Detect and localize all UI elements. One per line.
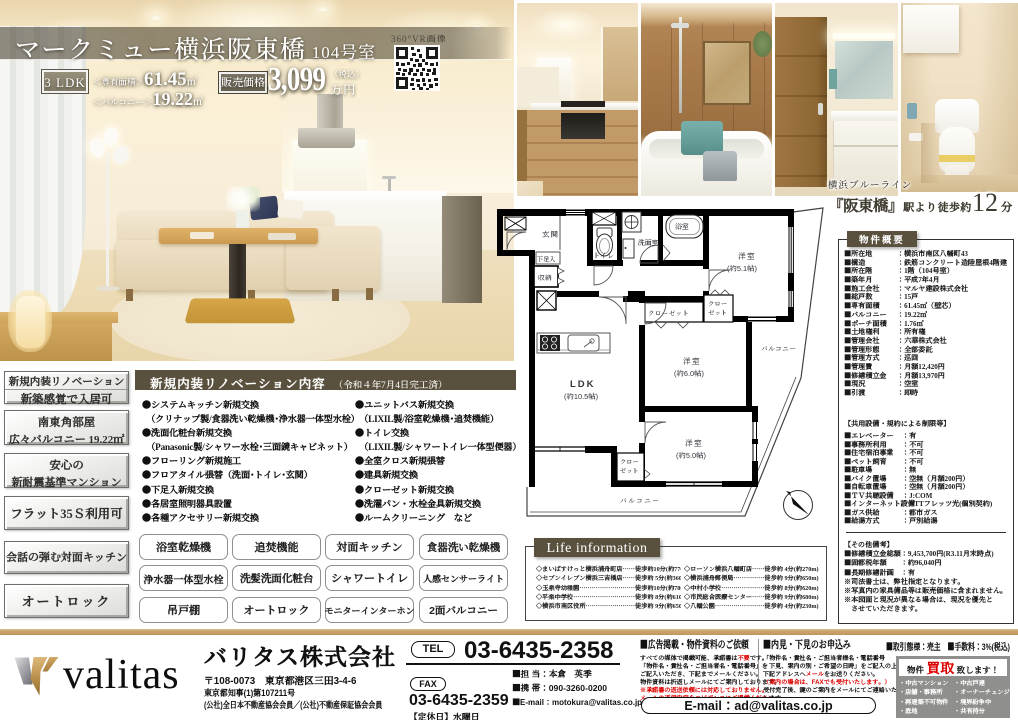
svg-text:(約5.1帖): (約5.1帖): [727, 263, 757, 274]
svg-text:洋室: 洋室: [738, 251, 756, 262]
svg-text:(約5.0帖): (約5.0帖): [676, 450, 706, 461]
svg-text:LDK: LDK: [570, 376, 596, 390]
svg-text:浴室: 浴室: [675, 222, 689, 232]
svg-text:(約10.5帖): (約10.5帖): [564, 391, 598, 402]
svg-text:クロー: クロー: [708, 299, 727, 308]
svg-text:バルコニー: バルコニー: [620, 495, 660, 505]
svg-text:バルコニー: バルコニー: [761, 343, 796, 353]
svg-text:洋室: 洋室: [685, 438, 703, 449]
svg-text:ゼット: ゼット: [620, 466, 639, 475]
svg-text:玄関: 玄関: [542, 229, 559, 240]
svg-text:洋室: 洋室: [683, 356, 701, 367]
svg-text:(約6.0帖): (約6.0帖): [674, 368, 704, 379]
svg-text:洗面室: 洗面室: [638, 237, 659, 247]
svg-text:クロー: クロー: [620, 457, 639, 466]
svg-text:ゼット: ゼット: [708, 308, 727, 317]
svg-text:トイレ: トイレ: [593, 251, 614, 261]
svg-text:下足入: 下足入: [536, 255, 556, 264]
svg-text:クローゼット: クローゼット: [648, 309, 689, 318]
svg-text:収納: 収納: [537, 272, 552, 282]
